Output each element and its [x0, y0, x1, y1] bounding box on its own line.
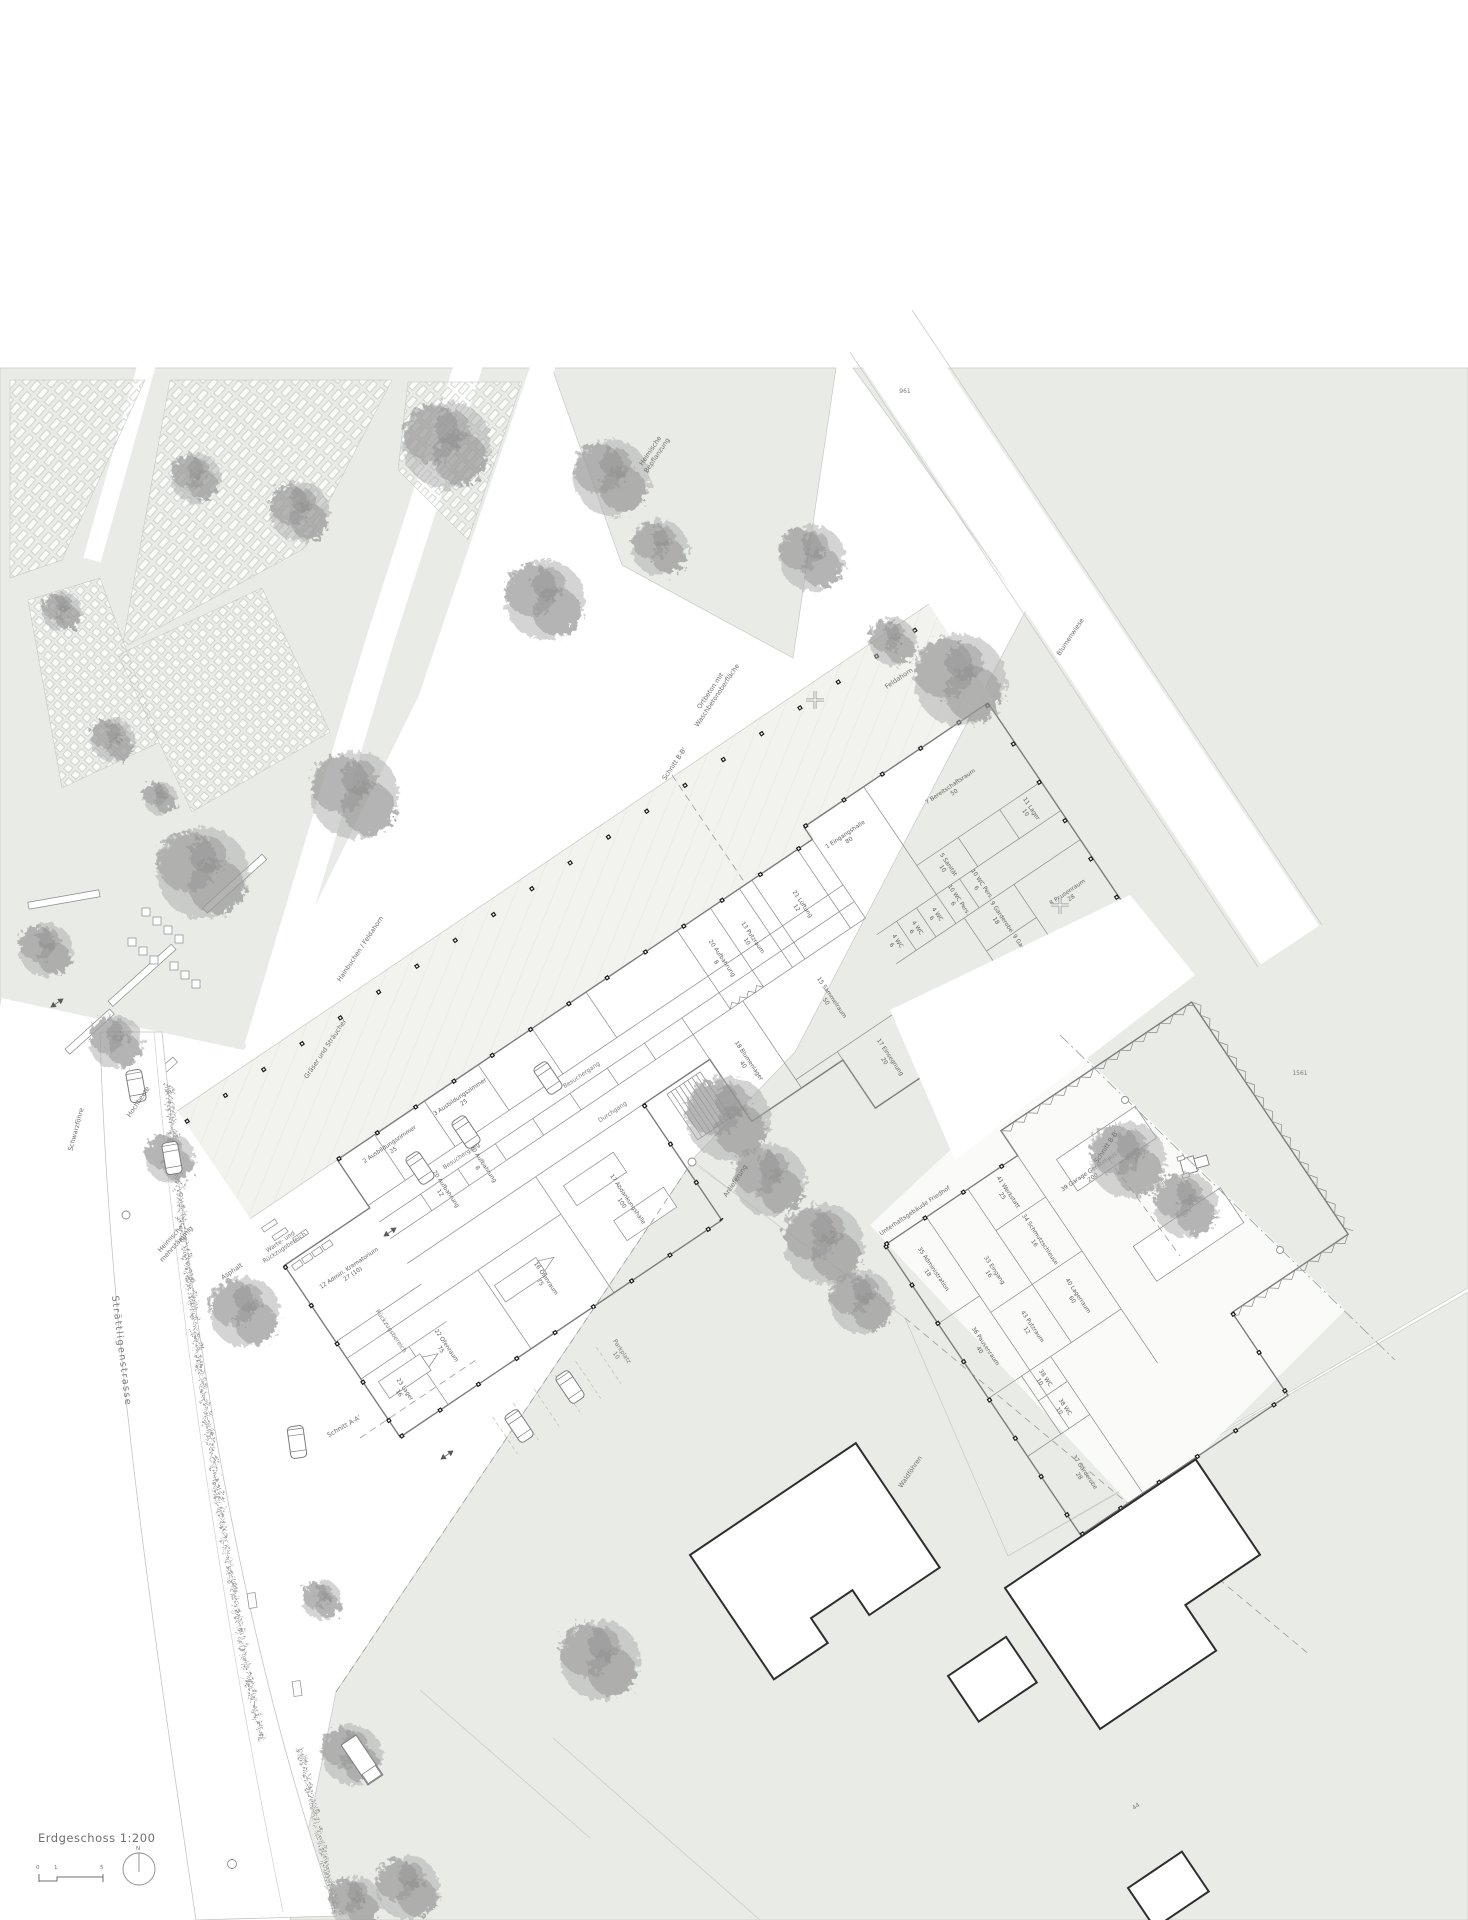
tree-icon [376, 1856, 440, 1920]
tree-icon [779, 525, 845, 591]
tree-icon [914, 634, 1006, 726]
tree-icon [1154, 1173, 1218, 1237]
site-plan-drawing: 1 Eingangshalle80 7 Bereitschaftsraum50 … [0, 0, 1468, 1920]
tree-icon [830, 1270, 894, 1334]
tree-icon [171, 453, 221, 503]
parcel-number: 961 [899, 388, 911, 395]
tree-icon [574, 440, 650, 516]
north-label: N [136, 1846, 140, 1852]
tree-icon [403, 401, 491, 489]
site-plan-sheet: 1 Eingangshalle80 7 Bereitschaftsraum50 … [0, 0, 1468, 1920]
tree-icon [869, 618, 917, 666]
tree-icon [270, 482, 330, 542]
scale-tick: 5 [100, 1865, 104, 1871]
tree-icon [19, 923, 73, 977]
tree-icon [311, 751, 399, 839]
tree-icon [210, 1277, 280, 1347]
manhole [228, 1860, 237, 1869]
bus-shelter [292, 1681, 302, 1697]
tree-icon [632, 520, 688, 576]
parcel-number: 1561 [1292, 1070, 1307, 1077]
tree-icon [42, 592, 82, 632]
manhole [122, 1211, 130, 1219]
tree-icon [302, 1580, 342, 1620]
tree-icon [560, 1620, 640, 1700]
bus-shelter [247, 1593, 257, 1609]
tree-icon [505, 560, 585, 640]
tree-icon [734, 1144, 806, 1216]
scale-tick: 0 [36, 1865, 40, 1871]
tree-icon [143, 781, 177, 815]
tree-icon [91, 718, 135, 762]
plan-title: Erdgeschoss 1:200 [38, 1831, 155, 1845]
scale-tick: 1 [54, 1865, 58, 1871]
tree-icon [157, 827, 249, 919]
tree-icon [89, 1015, 143, 1069]
